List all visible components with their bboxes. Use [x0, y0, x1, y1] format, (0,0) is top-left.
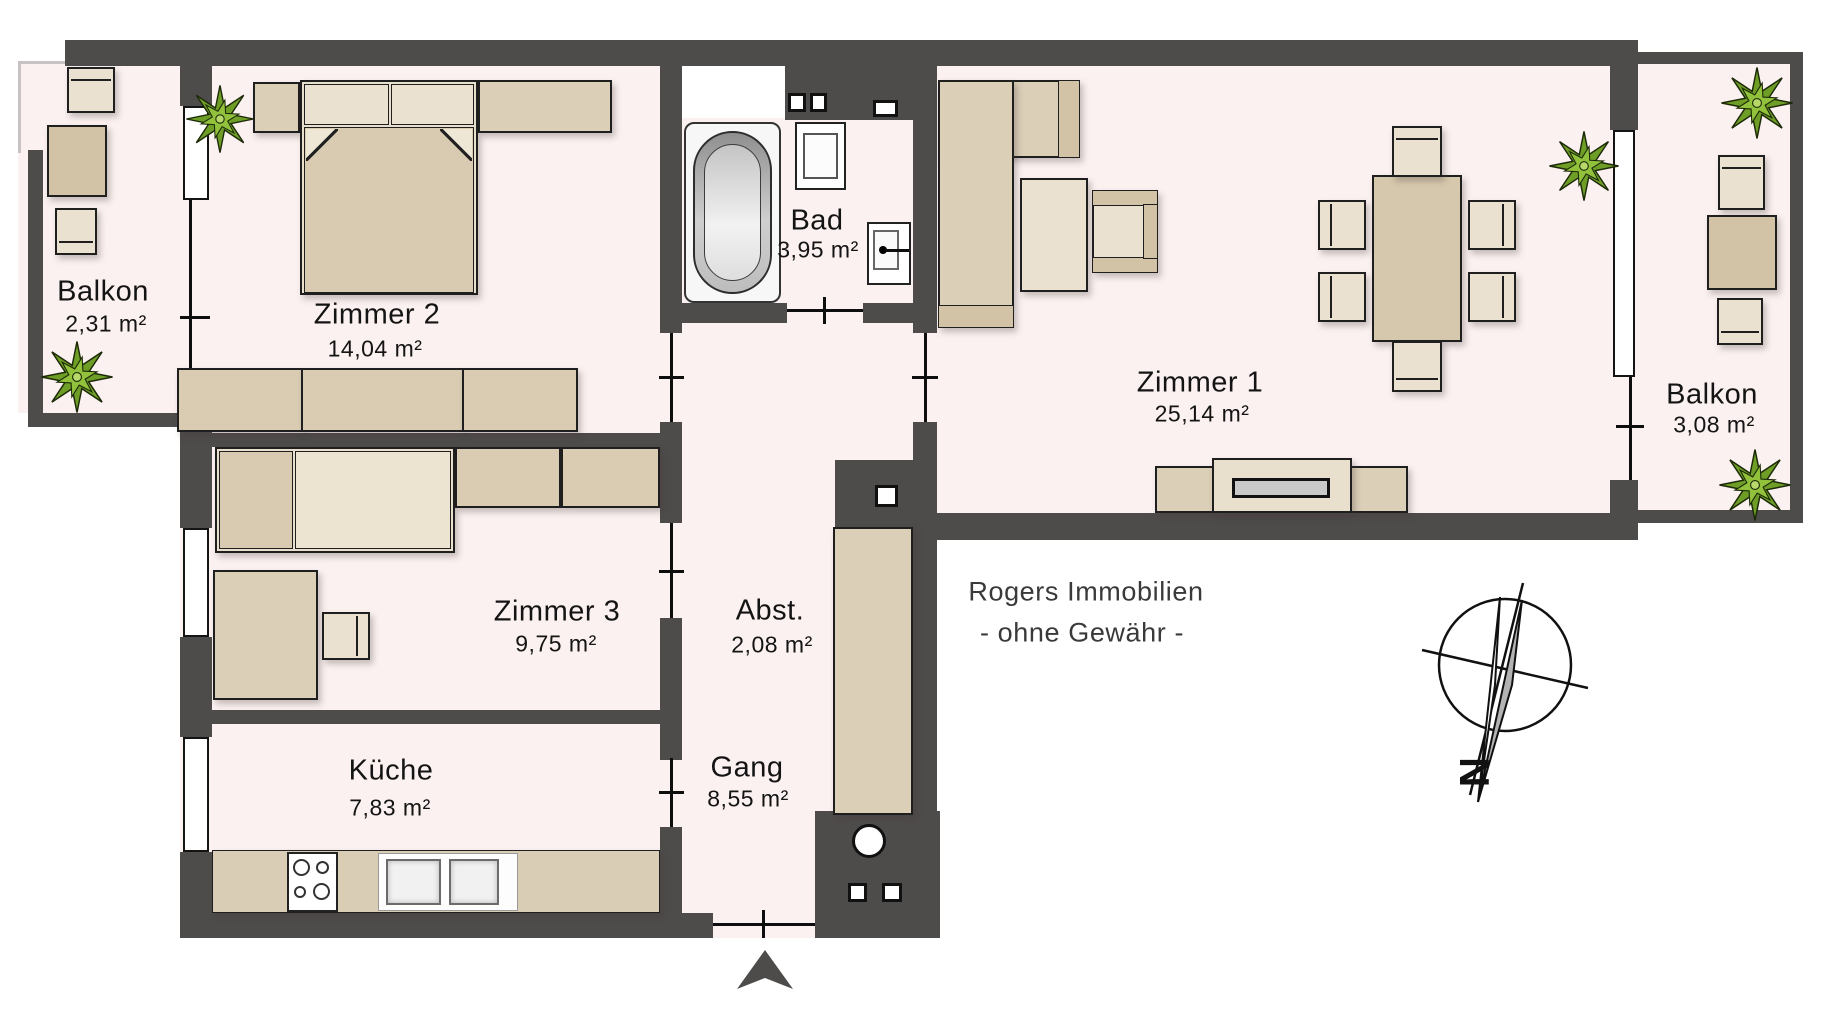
balcony-chair [1717, 298, 1763, 345]
bathtub-rim [693, 131, 772, 294]
wall-divider-z3-kueche [180, 710, 682, 724]
sofa-armrest [1058, 80, 1080, 158]
balkon-left-area: 2,31 m² [65, 311, 146, 338]
bathtub [684, 122, 781, 303]
balcony-left-rail-top [18, 61, 65, 64]
wall-bad-top-chunk [785, 40, 937, 120]
wall-balcony-right-top [1638, 52, 1803, 64]
desk [213, 570, 318, 700]
door-tick [659, 791, 684, 794]
wall-vent-icon [848, 883, 867, 902]
door-balcony-right [1629, 377, 1632, 480]
window-zimmer3 [183, 528, 209, 637]
wall-bottom-left [180, 913, 713, 938]
wall-corridor-left-a [660, 66, 682, 333]
wall-vent-icon [875, 485, 898, 507]
wall-bad-bottom-r [863, 303, 913, 323]
stove-burner-icon [294, 886, 306, 898]
sink-basin [803, 133, 838, 179]
dining-chair [1392, 126, 1442, 177]
door-tick [912, 376, 938, 379]
dining-chair [1468, 200, 1516, 250]
wall-vent-icon [882, 883, 902, 902]
balcony-table [47, 125, 107, 197]
stove [287, 852, 338, 912]
plant-icon [185, 84, 255, 154]
door-tick [180, 316, 210, 319]
wall-corridor-left-c [660, 618, 682, 760]
dining-chair [1318, 272, 1366, 322]
blanket-fold [440, 129, 472, 161]
abstellraum-label: Abst. [736, 595, 805, 628]
bed-pillow [304, 84, 389, 125]
blanket-fold [306, 129, 338, 161]
door-tick [659, 376, 684, 379]
dresser [478, 80, 612, 133]
desk-chair [322, 612, 370, 660]
bad-area: 3,95 m² [777, 237, 858, 264]
watermark-line1: Rogers Immobilien [968, 577, 1203, 608]
coffee-table [1020, 178, 1088, 292]
plant-icon [1548, 130, 1620, 202]
shower-area [682, 66, 785, 118]
wall-balcony-left-bottom [28, 413, 182, 427]
zimmer3-area: 9,75 m² [515, 631, 596, 658]
stove-burner-icon [293, 859, 310, 876]
sofa-armrest [938, 305, 1014, 328]
sofa-segment [462, 368, 578, 432]
bed-pillow [391, 84, 474, 125]
door-tick [659, 570, 684, 573]
dining-chair [1318, 200, 1366, 250]
watermark-line2: - ohne Gewähr - [980, 618, 1184, 649]
sink-basin [449, 859, 499, 905]
balcony-chair [67, 67, 115, 113]
door-balcony-left [189, 200, 192, 368]
balcony-table [1707, 215, 1777, 290]
zimmer2-label: Zimmer 2 [314, 299, 440, 332]
balcony-chair [1718, 155, 1765, 210]
wall-corridor-left-d [660, 827, 682, 938]
sofa-segment [301, 368, 464, 432]
balcony-left-rail-side [18, 61, 21, 153]
dining-chair [1468, 272, 1516, 322]
corner-sofa-left-arm [938, 80, 1014, 328]
wall-vent-icon [788, 93, 806, 112]
toilet [867, 222, 911, 285]
wall-bad-bottom-l [682, 303, 787, 323]
tv-screen [1232, 478, 1330, 498]
shelf-segment [455, 447, 561, 508]
balkon-right-label: Balkon [1666, 379, 1758, 412]
wall-divider-z2-z3 [180, 433, 682, 447]
wall-zimmer1-bottom [937, 513, 1638, 540]
kueche-label: Küche [349, 755, 434, 788]
window-kueche [183, 737, 209, 852]
dining-chair [1392, 341, 1442, 392]
nightstand [253, 82, 300, 133]
toilet-flush-line [885, 249, 909, 252]
wardrobe [833, 527, 913, 815]
plant-icon [40, 340, 114, 414]
armchair-armrest [1092, 257, 1158, 273]
door-tick [762, 910, 765, 938]
dining-table [1372, 175, 1462, 342]
stove-burner-icon [316, 861, 329, 874]
gang-label: Gang [711, 752, 784, 785]
kitchen-sink-unit [378, 853, 518, 911]
sink-basin [386, 859, 441, 905]
bad-label: Bad [790, 205, 843, 238]
entrance-arrow-icon [730, 945, 800, 995]
compass-icon: N [1415, 565, 1615, 815]
wall-zimmer1-right-a [1610, 66, 1638, 130]
door-tick [823, 297, 826, 324]
shelf-segment [561, 447, 660, 508]
bed-blanket [295, 451, 451, 549]
plant-icon [1720, 66, 1794, 140]
abstellraum-area: 2,08 m² [731, 632, 812, 659]
stove-burner-icon [313, 883, 330, 900]
plant-icon [1718, 448, 1792, 522]
wall-circle-icon [852, 824, 886, 858]
compass-north-label: N [1451, 757, 1498, 787]
zimmer1-label: Zimmer 1 [1137, 367, 1263, 400]
wall-vent-icon [810, 93, 827, 112]
balcony-chair [55, 208, 97, 255]
door-tick [1616, 425, 1644, 428]
bathtub-basin [704, 144, 761, 281]
zimmer1-area: 25,14 m² [1155, 401, 1250, 428]
balkon-left-label: Balkon [57, 276, 149, 309]
bed-pillow [219, 451, 293, 549]
sofa-segment [177, 368, 303, 432]
kueche-area: 7,83 m² [349, 795, 430, 822]
floor-plan: N Balkon 2,31 m² Zimmer 2 14,04 m² Bad 3… [0, 0, 1830, 1023]
bathroom-sink [795, 122, 846, 190]
gang-area: 8,55 m² [707, 786, 788, 813]
zimmer2-area: 14,04 m² [328, 336, 423, 363]
armchair-back [1143, 204, 1158, 259]
wall-vent-icon [873, 100, 898, 117]
balkon-right-area: 3,08 m² [1673, 412, 1754, 439]
zimmer3-label: Zimmer 3 [494, 596, 620, 629]
